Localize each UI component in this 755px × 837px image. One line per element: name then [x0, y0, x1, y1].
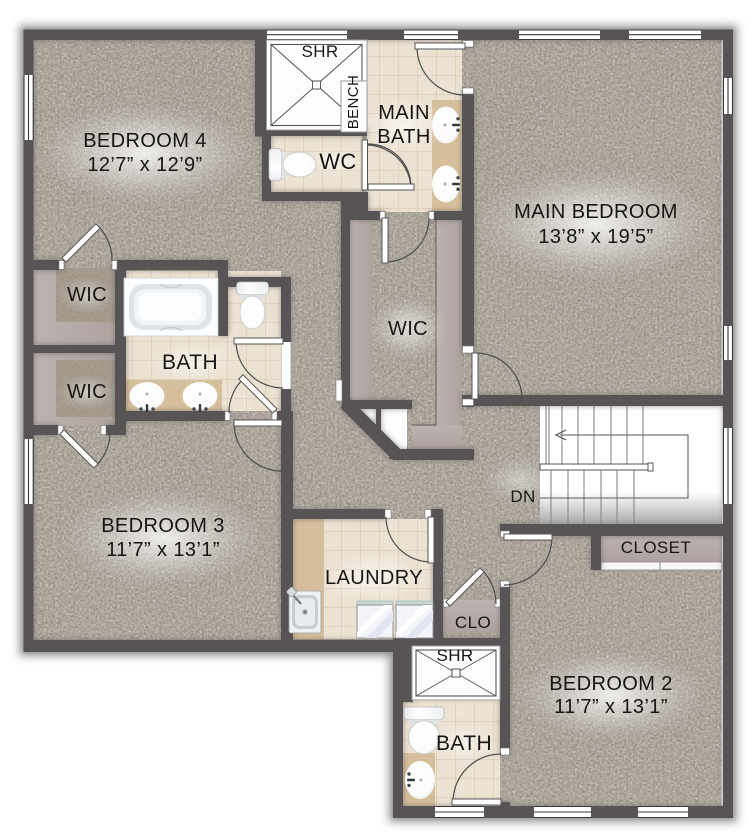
svg-text:LAUNDRY: LAUNDRY [325, 567, 423, 589]
svg-text:WIC: WIC [67, 381, 107, 403]
svg-text:SHR: SHR [301, 42, 338, 61]
svg-text:11’7” x 13’1”: 11’7” x 13’1” [554, 696, 668, 718]
svg-text:MAIN: MAIN [378, 102, 430, 124]
svg-text:BEDROOM 2: BEDROOM 2 [549, 673, 673, 695]
svg-text:12’7” x 12’9”: 12’7” x 12’9” [87, 154, 202, 176]
svg-text:CLO: CLO [455, 613, 491, 632]
svg-text:BEDROOM 3: BEDROOM 3 [101, 515, 225, 537]
svg-text:WIC: WIC [67, 284, 107, 306]
svg-text:WIC: WIC [388, 318, 428, 340]
svg-text:CLOSET: CLOSET [621, 538, 691, 557]
svg-text:DN: DN [510, 487, 535, 506]
svg-text:13’8” x 19’5”: 13’8” x 19’5” [538, 226, 653, 248]
svg-text:BEDROOM 4: BEDROOM 4 [83, 130, 207, 152]
svg-text:BATH: BATH [162, 351, 218, 374]
svg-text:BATH: BATH [377, 126, 430, 148]
svg-text:BENCH: BENCH [345, 75, 362, 130]
svg-text:MAIN BEDROOM: MAIN BEDROOM [514, 201, 678, 223]
svg-text:SHR: SHR [436, 646, 473, 665]
svg-text:BATH: BATH [436, 732, 492, 755]
svg-text:11’7” x 13’1”: 11’7” x 13’1” [106, 539, 220, 561]
svg-text:WC: WC [319, 149, 356, 174]
